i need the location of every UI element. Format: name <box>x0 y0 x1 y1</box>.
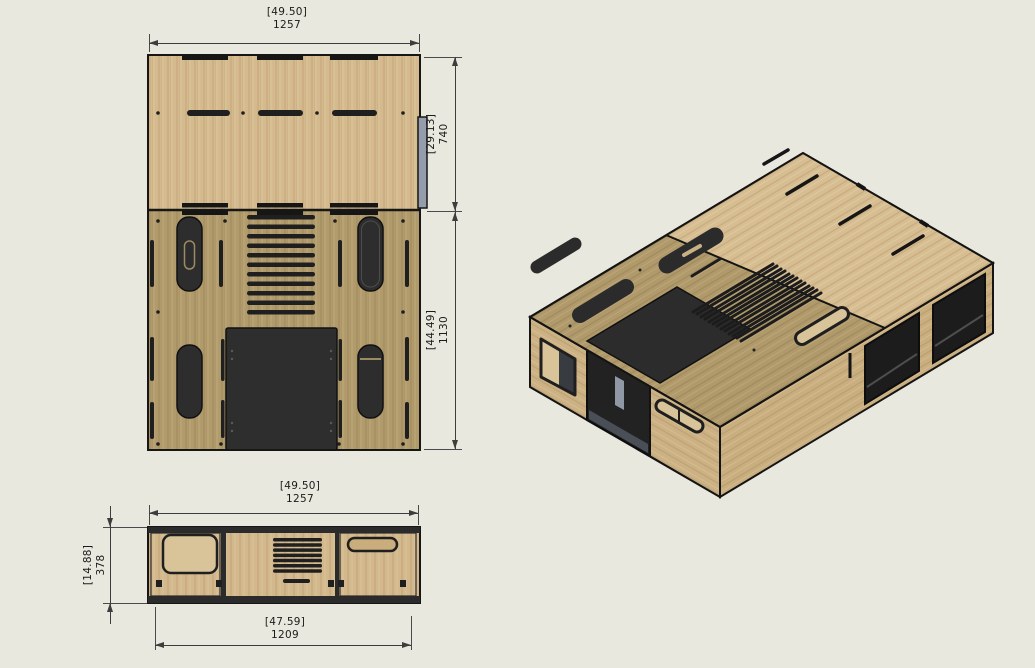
bottom-edge-strip <box>148 596 420 603</box>
dim-inches: [29.13] <box>425 114 438 154</box>
dim-inches: [47.59] <box>265 616 305 629</box>
top-edge-strip <box>148 527 420 533</box>
handle-cutout <box>358 345 383 418</box>
handle-cutout <box>348 538 397 551</box>
arrowhead <box>452 57 458 66</box>
arrowhead <box>402 642 411 648</box>
top-view <box>139 46 434 458</box>
arrowhead <box>107 518 113 527</box>
handle-cutout <box>177 345 202 418</box>
isometric-view <box>512 138 1012 508</box>
dim-mm: 1257 <box>280 493 320 506</box>
top-panel <box>148 55 427 210</box>
arrowhead <box>155 642 164 648</box>
arrowhead <box>409 510 418 516</box>
handle-cutout <box>537 244 575 267</box>
window-cutout <box>163 535 217 573</box>
dim-inches: [49.50] <box>267 6 307 19</box>
dim-mm: 378 <box>95 545 108 585</box>
dim-inches: [14.88] <box>82 545 95 585</box>
alignment-tab <box>615 376 624 410</box>
arrowhead <box>107 603 113 612</box>
arrowhead <box>452 202 458 211</box>
arrowhead <box>452 440 458 449</box>
dim-mm: 1130 <box>438 310 451 350</box>
handle-cutout <box>177 217 202 291</box>
dim-inches: [44.49] <box>425 310 438 350</box>
arrowhead <box>149 40 158 46</box>
dim-mm: 1209 <box>265 629 305 642</box>
front-view <box>139 522 434 622</box>
arrowhead <box>410 40 419 46</box>
dim-mm: 1257 <box>267 19 307 32</box>
handle-cutout <box>358 217 383 291</box>
dim-mm: 740 <box>438 114 451 154</box>
arrowhead <box>149 510 158 516</box>
dim-inches: [49.50] <box>280 480 320 493</box>
hatch-panel <box>226 328 337 450</box>
arrowhead <box>452 212 458 221</box>
deck-panel <box>148 210 420 450</box>
drawing-canvas: [49.50] 1257 [29.13] 740 [44.49] 1130 [4 <box>0 0 1035 668</box>
